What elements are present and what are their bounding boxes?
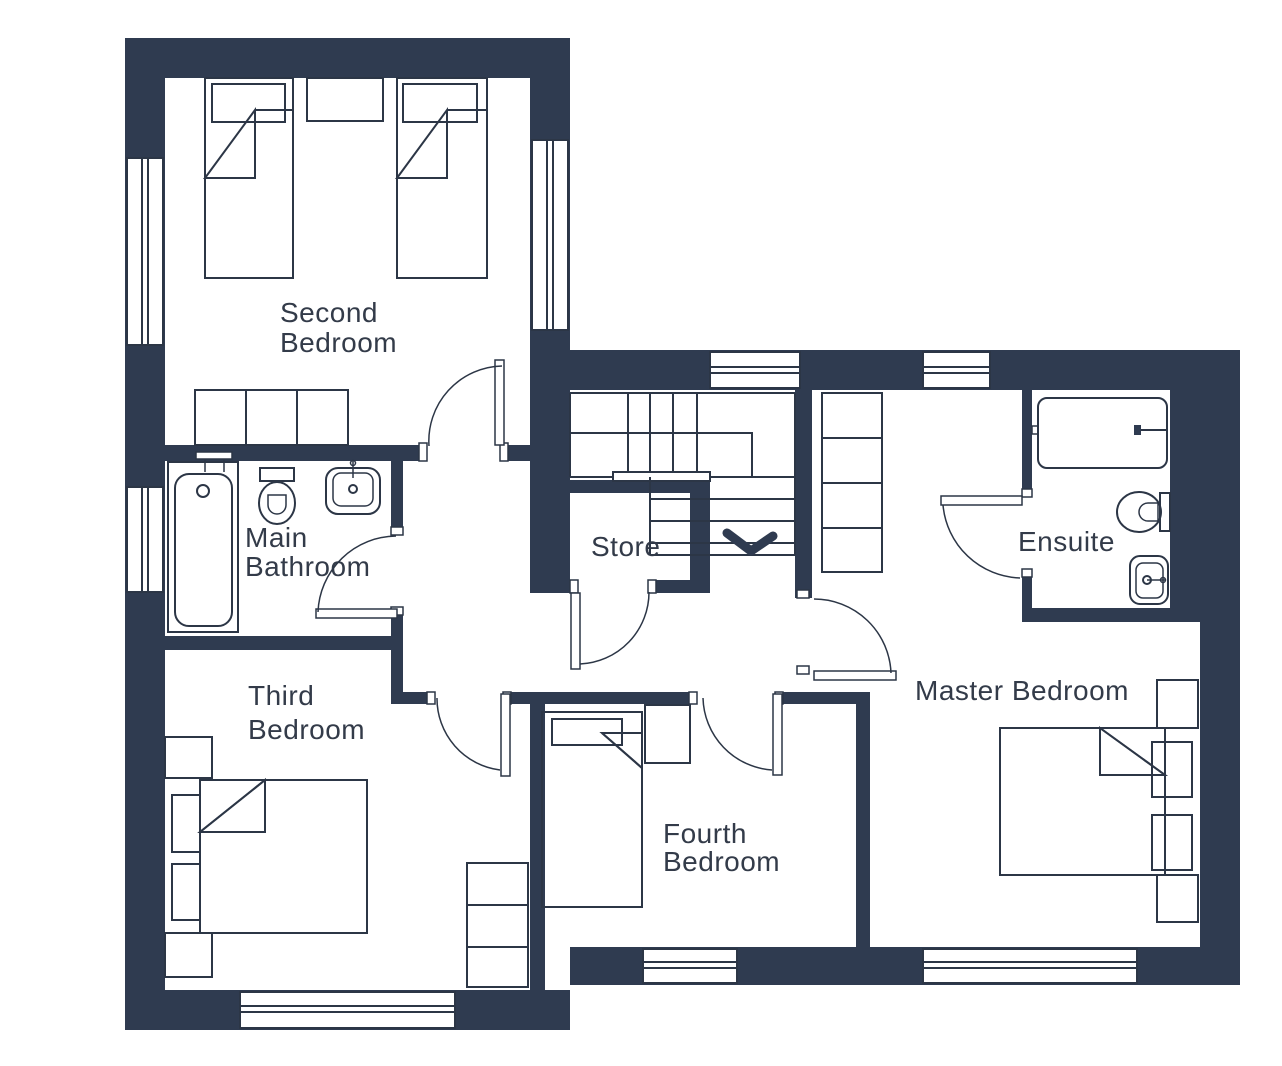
double-bed [1000,728,1192,875]
door-leaf [571,593,580,669]
door-store [570,580,656,669]
wall-fourth-top-left [545,692,697,704]
wall-right-exterior [1200,350,1240,985]
bedside-table [307,78,383,121]
room-label-main-bathroom-line1: Main [245,522,308,553]
room-label-second-bedroom-line1: Second [280,297,378,328]
door-leaf [316,609,397,618]
door-swing-arc [580,592,649,664]
door-leaf [941,496,1022,505]
wall-ensuite-right [1170,390,1200,622]
wardrobe [467,863,528,987]
windows [127,140,1137,1028]
single-bed-right [397,78,487,278]
room-label-store: Store [591,531,660,562]
stair-treads-upper [628,393,697,477]
room-label-third-bedroom-line2: Bedroom [248,714,365,745]
door-swing-arc [943,505,1020,578]
window-master-bedroom-bottom [923,949,1137,983]
door-swing-arc [703,698,772,770]
shower [1032,398,1168,468]
door-leaf [501,694,510,776]
room-main-bathroom: Main Bathroom [168,452,380,632]
wall-bathroom-right-upper [391,461,403,535]
stair-landing [570,433,752,477]
window-third-bedroom-bottom [240,992,455,1028]
door-master-bedroom [797,590,896,680]
room-master-bedroom: Master Bedroom [822,393,1198,922]
door-second-bedroom [419,360,508,461]
toilet [259,468,295,524]
door-swing-arc [429,366,502,446]
pillow [1152,815,1192,870]
room-store: Store [591,531,660,562]
room-label-fourth-bedroom-line1: Fourth [663,818,747,849]
wall-ensuite-left-upper [1022,390,1032,497]
door-fourth-bedroom [689,692,783,775]
room-fourth-bedroom: Fourth Bedroom [542,705,780,907]
room-label-second-bedroom-line2: Bedroom [280,327,397,358]
door-leaf [773,694,782,775]
door-swing-arc [437,698,500,770]
wall-fourth-master-divider [856,692,870,947]
wall-hall-master [795,390,812,598]
sink [326,460,380,514]
wall-store-right [690,480,710,593]
floor-plan-svg: Second Bedroom Main Bathroom [0,0,1282,1066]
room-label-ensuite: Ensuite [1018,526,1115,557]
single-bed-left [205,78,293,278]
stair-handrail [613,472,710,481]
sink [1130,556,1168,604]
window-fourth-bedroom-bottom [643,949,737,983]
wall-top-middle [570,350,1240,390]
built-in-wardrobe [822,393,882,572]
pillow [172,795,200,852]
room-second-bedroom: Second Bedroom [195,78,487,445]
room-label-third-bedroom-line1: Third [248,680,314,711]
floor-plan: Second Bedroom Main Bathroom [0,0,1282,1066]
window-bathroom-left [127,487,163,592]
drawer-unit [195,390,348,445]
wall-store-bottom-right [648,580,710,593]
nightstand-top [165,737,212,778]
window-stairs-top [710,352,800,388]
wall-fourth-top-right [775,692,870,704]
nightstand-top [1157,680,1198,728]
double-bed [172,780,367,933]
pillow [172,864,200,920]
room-third-bedroom: Third Bedroom [165,680,528,987]
wall-bathroom-bottom [165,636,403,650]
wall-top-left-block [125,38,570,78]
wall-ensuite-bottom [1022,608,1200,622]
room-label-fourth-bedroom-line2: Bedroom [663,846,780,877]
door-leaf [495,360,504,445]
single-bed [542,712,642,907]
room-label-master-bedroom: Master Bedroom [915,675,1129,706]
wardrobe [645,705,690,763]
window-master-top [923,352,990,388]
nightstand-bottom [165,933,212,977]
door-swing-arc [814,599,891,673]
room-ensuite: Ensuite [1018,398,1170,604]
window-second-bedroom-left [127,158,163,345]
door-third-bedroom [427,692,511,776]
bathtub [168,452,238,632]
nightstand-bottom [1157,875,1198,922]
toilet [1117,492,1170,532]
window-second-bedroom-right [532,140,568,330]
door-leaf [814,671,896,680]
room-label-main-bathroom-line2: Bathroom [245,551,370,582]
